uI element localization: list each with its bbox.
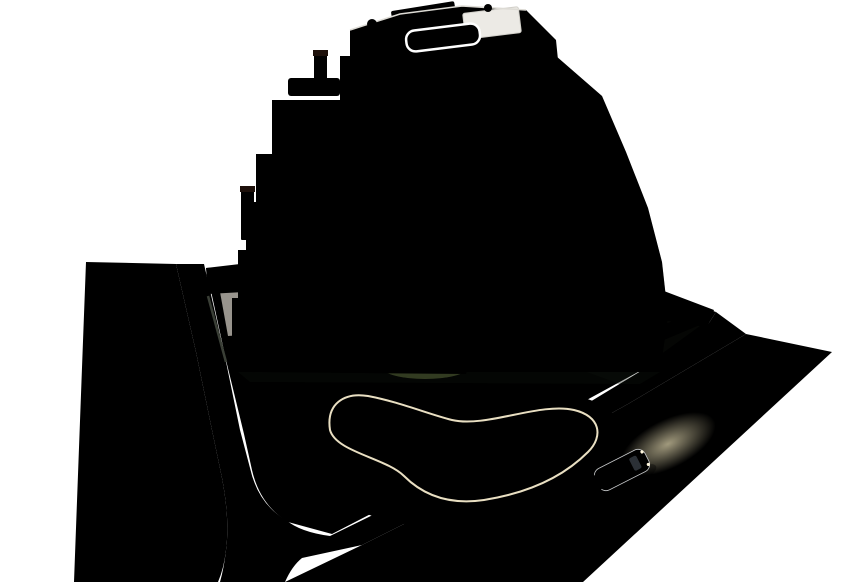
chimney-2-cap (240, 186, 255, 192)
rooftop (350, 1, 558, 62)
chimney-3 (614, 186, 627, 214)
chimney-2 (241, 188, 254, 240)
render-canvas (0, 0, 851, 582)
chimney-1 (314, 52, 327, 94)
chimney-1-cap (313, 50, 328, 56)
mid-left-terrace (250, 216, 334, 242)
apartment-building (232, 1, 707, 384)
roof-plant-1 (367, 19, 377, 29)
roof-plant-2 (484, 4, 492, 12)
architectural-render (0, 0, 851, 582)
